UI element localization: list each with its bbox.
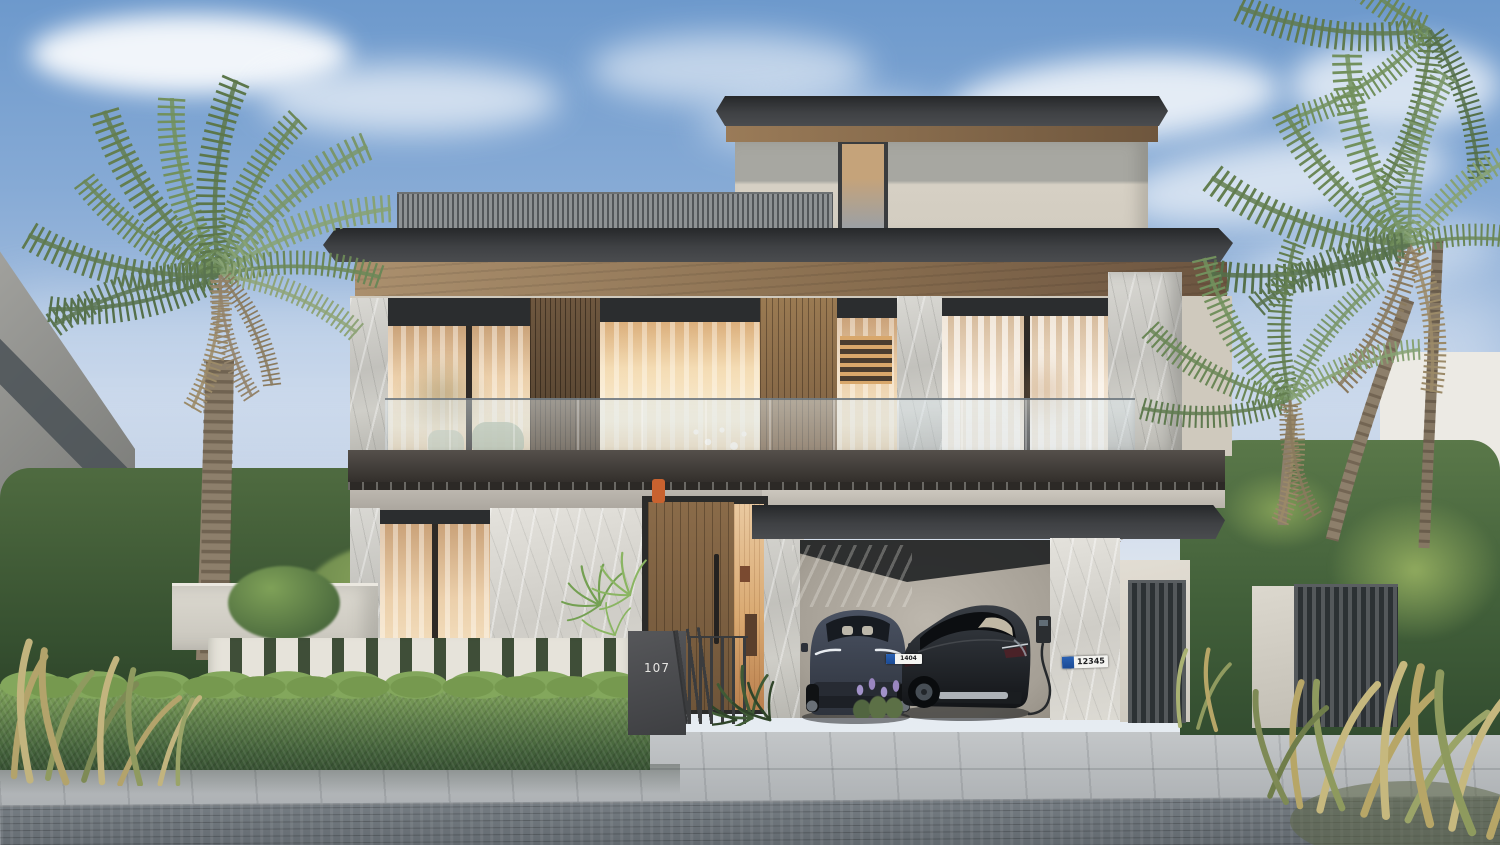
plate-emirate-badge <box>886 654 895 664</box>
plate-number: 12345 <box>1074 657 1108 666</box>
door-handle <box>714 554 719 644</box>
ornamental-grasses-right <box>1150 596 1500 845</box>
villa-exterior-rendering: 1404 12345 <box>0 0 1500 845</box>
palm-trees-right <box>1040 0 1500 560</box>
ev-charger <box>1028 616 1051 714</box>
window-louvre-blind <box>840 336 892 384</box>
entrance-plant <box>712 648 804 726</box>
interior-artwork <box>740 566 750 582</box>
plate-number: 1404 <box>895 656 922 662</box>
dry-grass-left <box>0 586 210 786</box>
lavender-flowers <box>850 674 908 718</box>
plate-emirate-badge <box>1062 656 1074 668</box>
third-floor-window <box>838 140 888 234</box>
ev-charging-cable <box>1028 643 1050 714</box>
round-bush <box>228 566 340 640</box>
palm-canopy <box>28 80 397 409</box>
door-accent-lamp <box>652 479 665 503</box>
license-plate-right: 12345 <box>1062 655 1108 669</box>
balcony-glass-balustrade <box>385 398 1135 456</box>
carport-vehicles <box>790 556 1070 734</box>
license-plate-left: 1404 <box>886 654 922 664</box>
